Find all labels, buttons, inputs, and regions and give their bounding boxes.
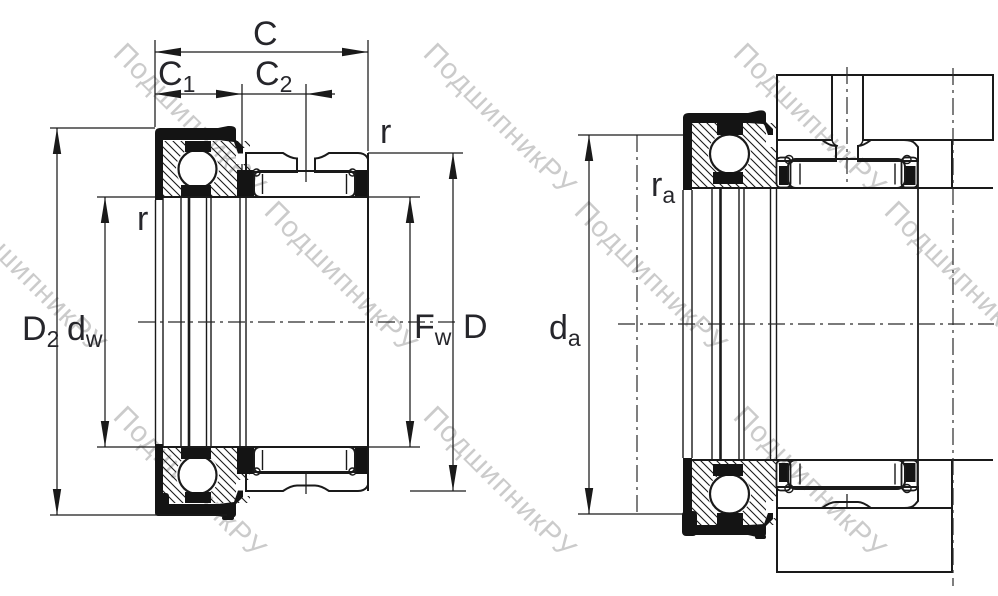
label-d: D <box>463 308 488 346</box>
label-r-lower: r <box>137 200 148 238</box>
bearing-technical-drawing: ПодшипникРУ ПодшипникРУ ПодшипникРУ Подш… <box>0 0 998 596</box>
label-c: C <box>253 15 278 53</box>
label-r-upper: r <box>380 113 391 151</box>
drawing-canvas: ПодшипникРУ ПодшипникРУ ПодшипникРУ Подш… <box>0 0 998 596</box>
